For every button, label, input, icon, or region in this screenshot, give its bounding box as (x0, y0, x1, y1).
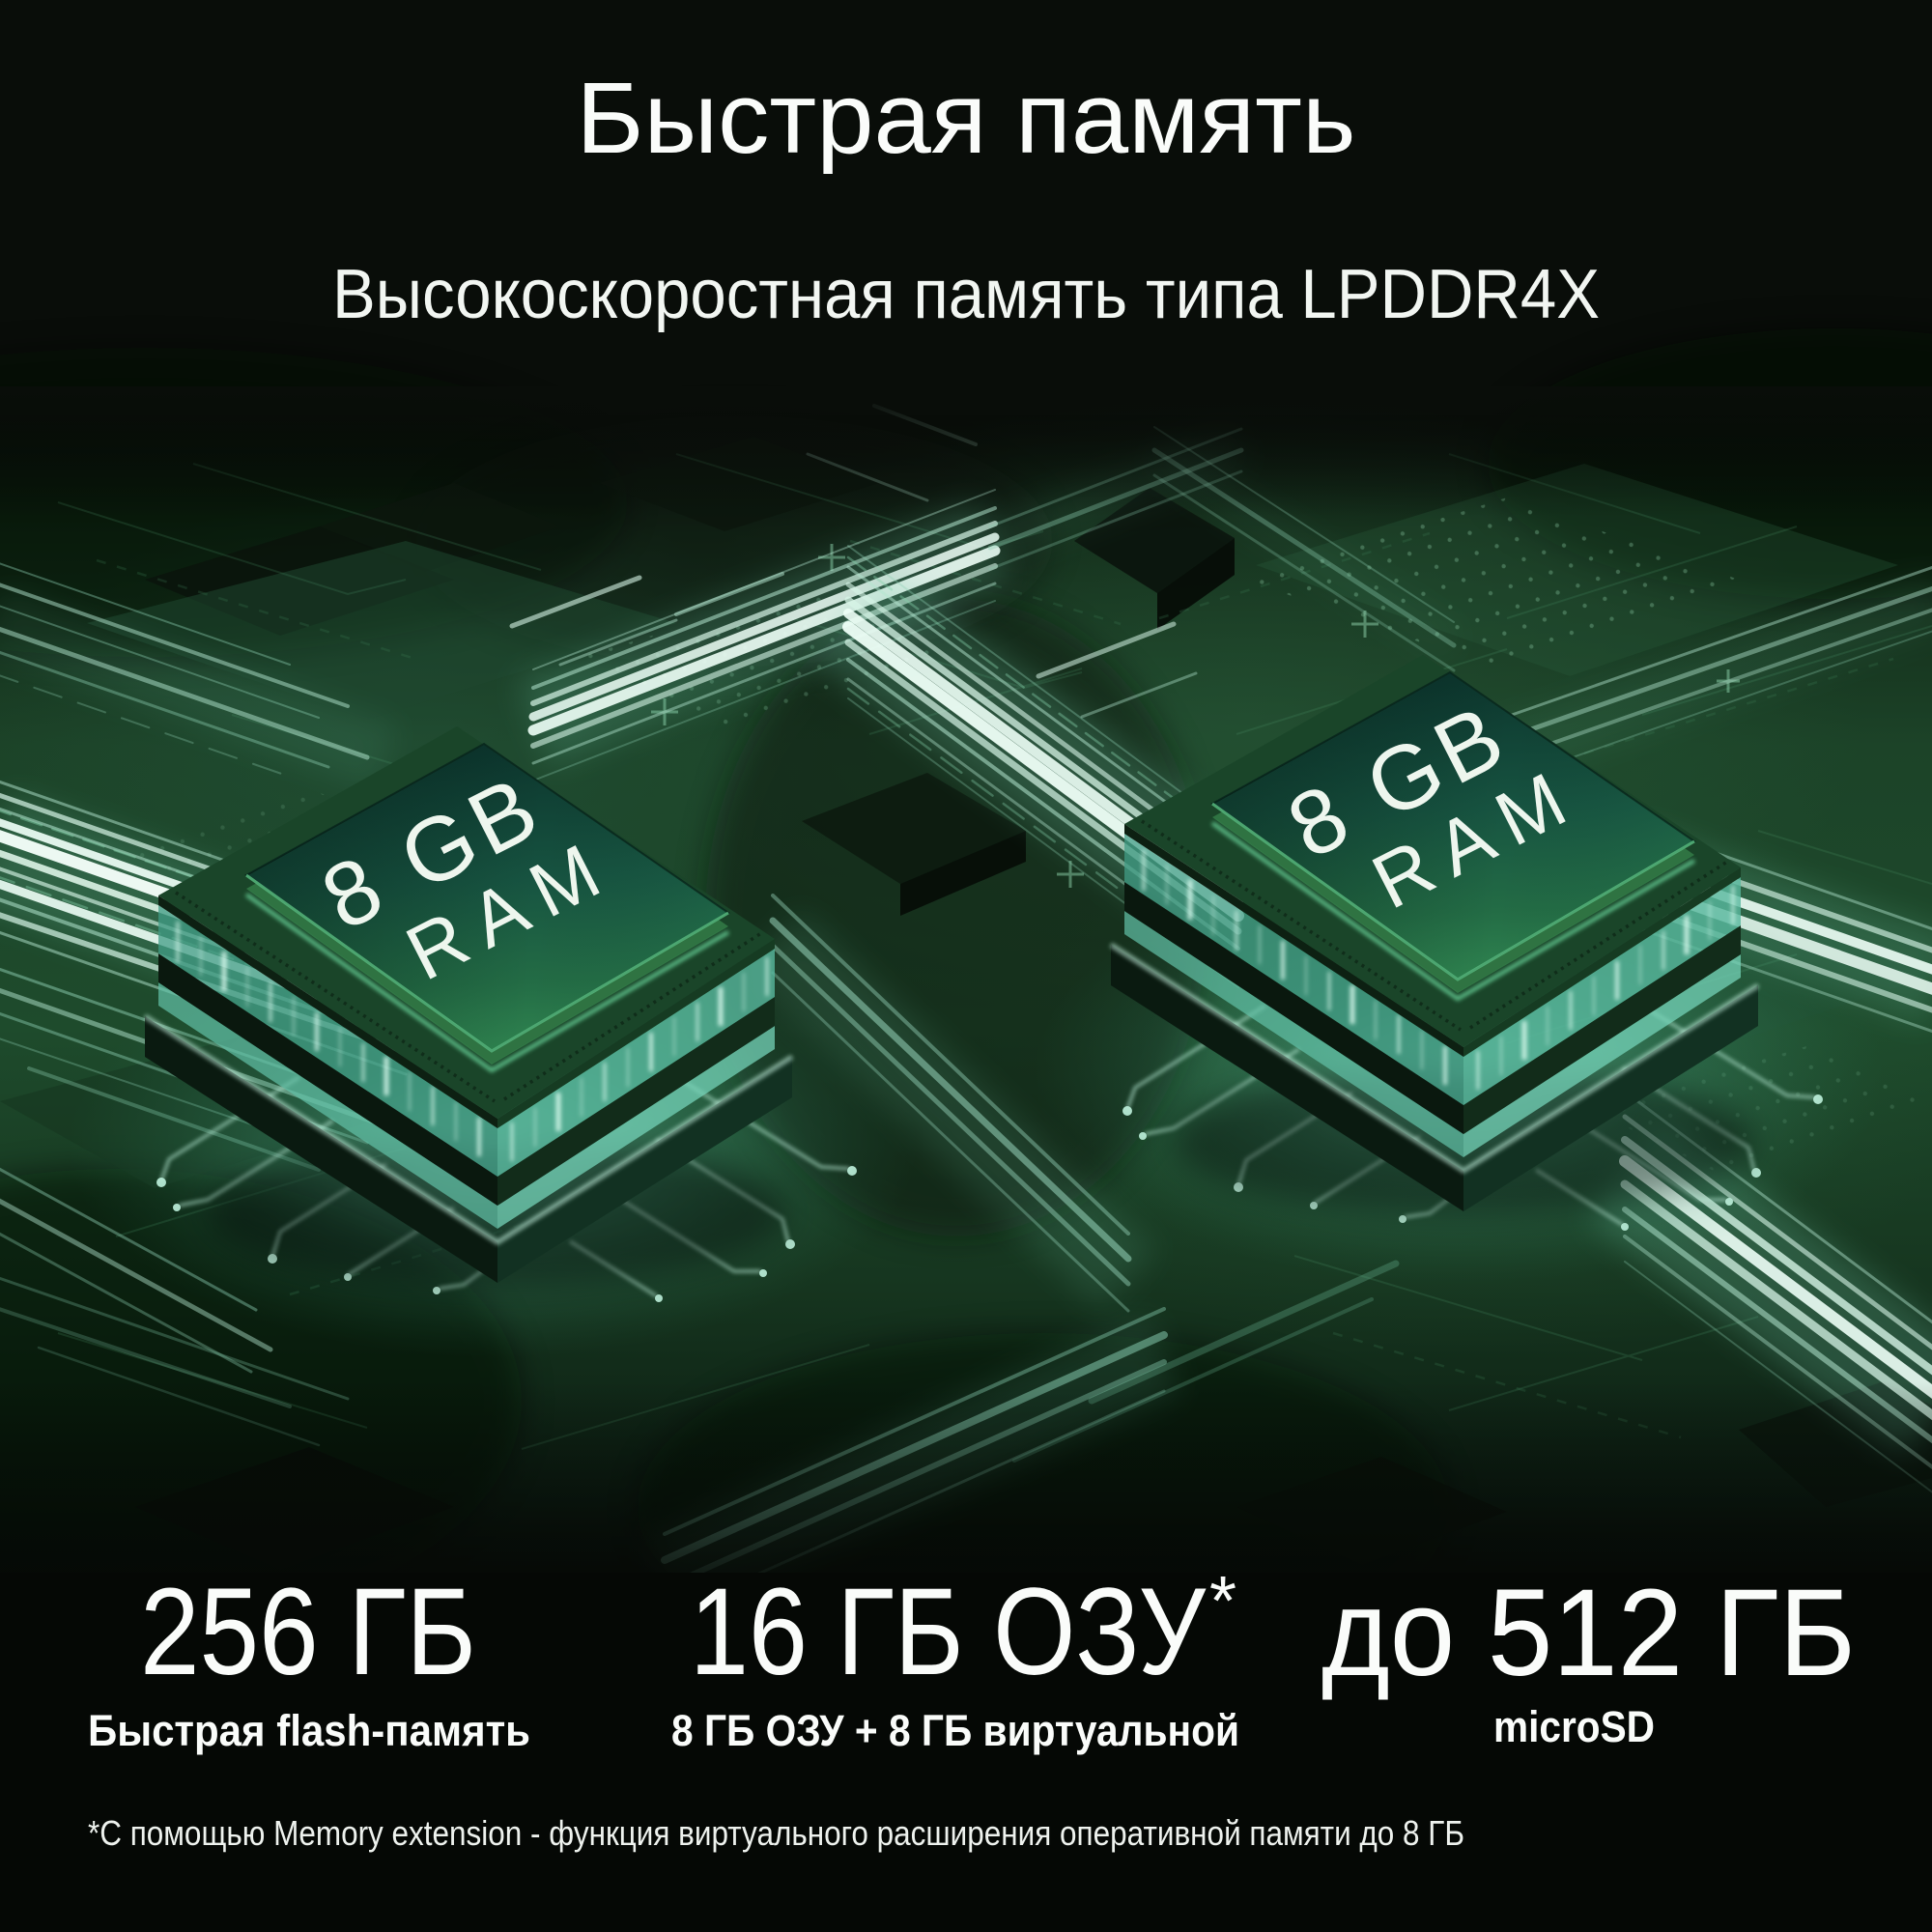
svg-text:microSD: microSD (1493, 1702, 1655, 1751)
svg-text:Быстрая flash-память: Быстрая flash-память (88, 1706, 530, 1755)
svg-text:*: * (1209, 1563, 1236, 1640)
svg-text:Высокоскоростная память типа L: Высокоскоростная память типа LPDDR4X (332, 256, 1600, 333)
svg-text:*С помощью Memory extension -: *С помощью Memory extension - функция ви… (88, 1813, 1464, 1853)
svg-text:256 ГБ: 256 ГБ (140, 1563, 476, 1701)
svg-text:8 ГБ ОЗУ + 8 ГБ виртуальной: 8 ГБ ОЗУ + 8 ГБ виртуальной (671, 1706, 1239, 1755)
svg-text:Быстрая память: Быстрая память (577, 62, 1356, 175)
svg-text:до 512 ГБ: до 512 ГБ (1321, 1564, 1856, 1702)
svg-text:16 ГБ ОЗУ: 16 ГБ ОЗУ (690, 1563, 1207, 1701)
